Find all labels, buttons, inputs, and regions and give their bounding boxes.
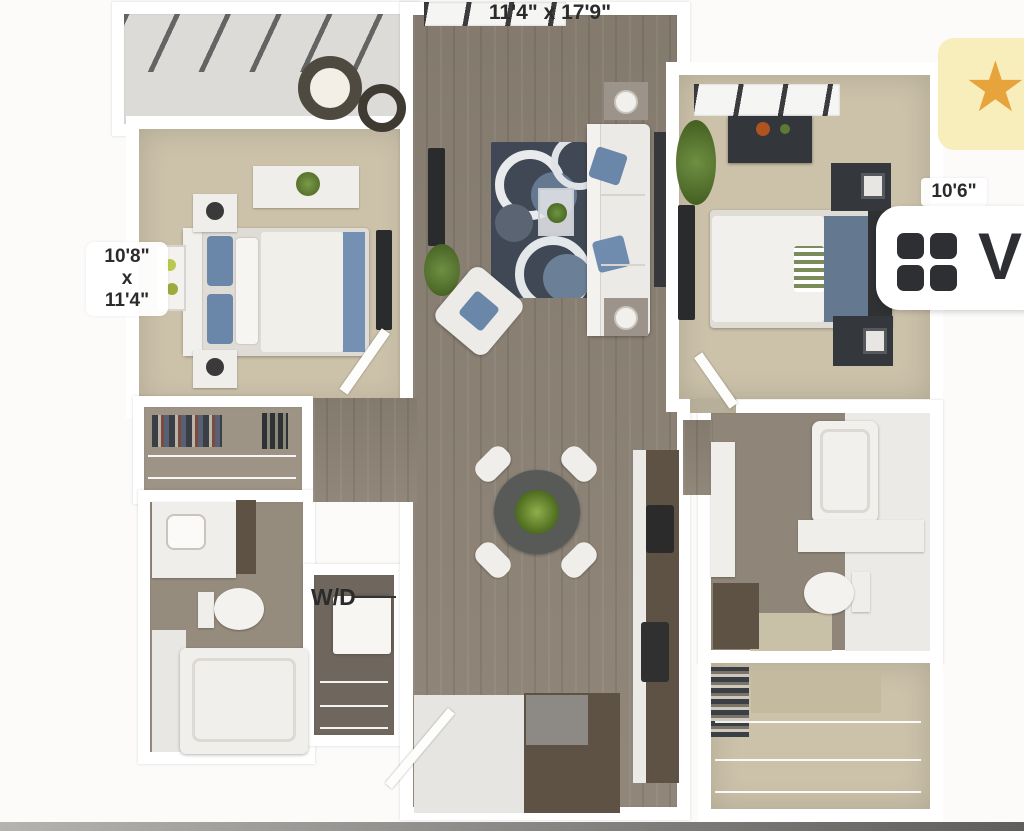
plant-right-bedroom [676, 120, 716, 205]
bed-right-striped-pillow [794, 246, 824, 292]
hanging-clothes-right [262, 413, 288, 449]
washer-dryer-label: W/D [311, 584, 356, 611]
laundry-wire-3 [320, 727, 388, 729]
tv-left-bedroom [376, 230, 392, 330]
grid-icon-sq-1 [897, 233, 924, 259]
hanging-egg-chair [298, 56, 362, 120]
kitchen-island [524, 693, 620, 813]
hallway-floor [313, 398, 417, 502]
bedroom-left-dims-line1: 10'8" [88, 246, 166, 268]
bed-left-throw-blue [343, 232, 365, 352]
bathtub-left-inner [192, 658, 296, 742]
wall-decor-living [654, 132, 666, 287]
bedroom-right-window [694, 84, 840, 116]
bathtub-right-inner [820, 429, 870, 513]
bathtub-left [180, 648, 308, 754]
bed-left-pillow-blue-1 [207, 236, 233, 286]
bottom-edge-strip [0, 822, 1024, 831]
bed-left-pillow-blue-2 [207, 294, 233, 344]
kitchen-sink [641, 622, 669, 682]
grid-icon-sq-3 [897, 265, 924, 291]
kitchen-countertop-edge [633, 450, 646, 783]
bedroom-right-dimensions-label: 10'6" [921, 178, 987, 206]
screenshot-root: 11'4" x 17'9" 10'8" x 11'4" 10'6" W/D ★ … [0, 0, 1024, 831]
bedroom-left-dimensions-label: 10'8" x 11'4" [86, 242, 168, 316]
armchair-pillow [458, 290, 500, 332]
lamp-left-2 [206, 358, 224, 376]
sofa-seam-1 [601, 194, 645, 196]
closet-right-wire-2 [715, 759, 921, 761]
plant-on-dresser [296, 172, 320, 196]
wd-leader-line [352, 596, 396, 598]
kitchen-counter-run [633, 450, 679, 783]
bed-left [183, 228, 369, 356]
wire-shelf-line-2 [148, 477, 296, 479]
dresser-right-bedroom [728, 116, 812, 163]
sink-left-bath [166, 514, 206, 550]
hanging-clothes-left [152, 415, 222, 447]
dresser-decor-plant [780, 124, 790, 134]
lamp-right-2 [863, 328, 887, 354]
cabinet-right-bath [711, 442, 735, 577]
bathtub-right [812, 421, 878, 523]
star-icon: ★ [964, 52, 1024, 122]
laundry-wire-1 [320, 681, 388, 683]
rug-disc-3 [543, 254, 591, 298]
toilet-bowl-left [214, 588, 264, 630]
closet-right-wire-1 [715, 721, 921, 723]
tv-right-bedroom [678, 205, 695, 320]
favorite-button[interactable]: ★ [938, 38, 1024, 150]
toilet-bowl-right [804, 572, 854, 614]
wire-shelf-line-1 [148, 455, 296, 457]
bed-right-sheets-blue [824, 216, 868, 322]
floorplan-image[interactable]: 11'4" x 17'9" 10'8" x 11'4" 10'6" W/D [0, 0, 1024, 831]
laundry-wire-2 [320, 705, 388, 707]
closet-left [133, 396, 313, 504]
closet-right-wire-3 [715, 791, 921, 793]
dining-table-plant [515, 490, 559, 534]
sofa-seam-2 [601, 264, 645, 266]
rug-disc-2 [495, 204, 533, 242]
toilet-tank-left [198, 592, 214, 628]
lamp-right-1 [861, 173, 885, 199]
bedroom-left-dims-line2: x [88, 268, 166, 290]
grid-icon-sq-2 [930, 233, 957, 259]
cabinet-left-bath [236, 500, 256, 574]
view-button[interactable]: V [876, 206, 1024, 310]
bathroom-right-mat [750, 613, 832, 651]
cooktop [646, 505, 674, 553]
closet-right-backwall [751, 671, 881, 713]
vanity-left-bath [152, 502, 236, 578]
lamp-left-1 [206, 202, 224, 220]
counter-right-bath [713, 583, 759, 649]
bed-left-pillow-white [236, 238, 258, 344]
side-table-top [604, 82, 648, 120]
island-top [526, 695, 588, 745]
sofa-pillow-2 [592, 235, 631, 274]
side-table-bottom [604, 298, 648, 336]
lamp-side-table-bottom [614, 306, 638, 330]
bath-right-doorway [683, 420, 713, 495]
bed-left-duvet [261, 232, 343, 352]
balcony-pergola-slats [124, 14, 408, 72]
bed-right [710, 210, 892, 328]
grid-icon [897, 233, 957, 291]
bedroom-left-dims-line3: 11'4" [88, 290, 166, 312]
lamp-side-table-top [614, 90, 638, 114]
closet-right [698, 650, 943, 822]
toilet-tank-right [852, 572, 870, 612]
coffee-table [538, 188, 574, 236]
dresser-decor-orange [756, 122, 770, 136]
entry-floor [414, 695, 524, 813]
view-button-label: V [978, 220, 1022, 293]
nightstand-right-1 [831, 163, 891, 211]
bed-left-headboard [183, 228, 203, 356]
grid-icon-sq-4 [930, 265, 957, 291]
tv-living-room [428, 148, 445, 246]
vanity-right-bath [798, 520, 924, 552]
wicker-chair [358, 84, 406, 132]
nightstand-right-2 [833, 316, 893, 366]
plant-coffee-table [547, 203, 567, 223]
closet-right-clothes [711, 667, 749, 737]
living-dimensions-label: 11'4" x 17'9" [410, 1, 690, 25]
